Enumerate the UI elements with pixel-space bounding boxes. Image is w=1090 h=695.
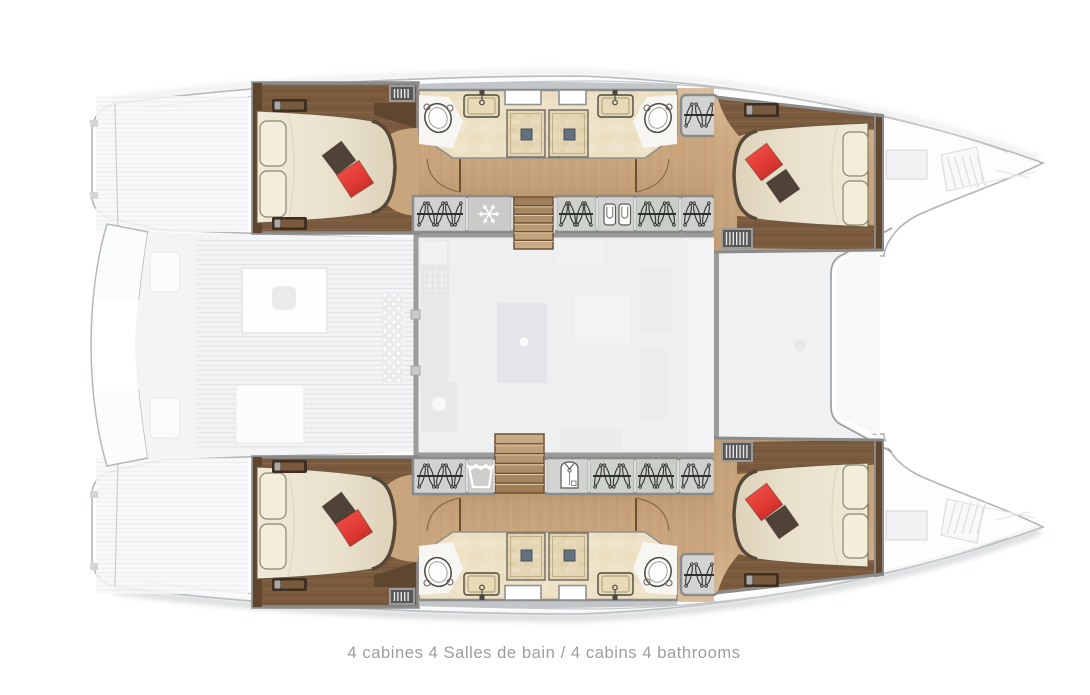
svg-text:4 cabines 4 Salles de bain / 4: 4 cabines 4 Salles de bain / 4 cabins 4 … [347,643,740,662]
